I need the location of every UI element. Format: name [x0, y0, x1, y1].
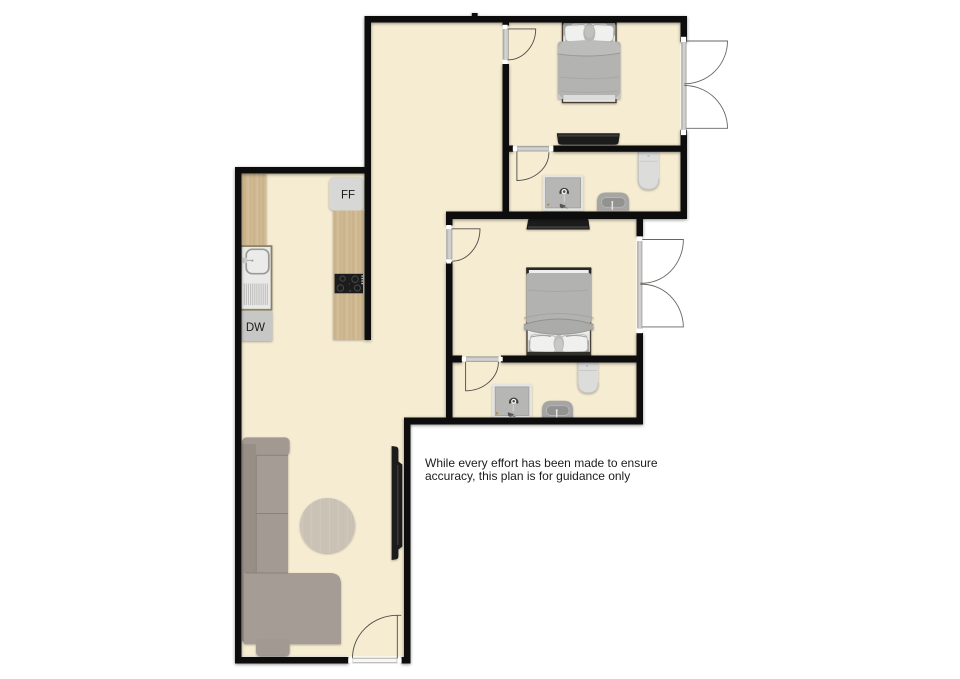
svg-text:DW: DW [246, 322, 265, 334]
svg-text:FF: FF [341, 190, 355, 202]
